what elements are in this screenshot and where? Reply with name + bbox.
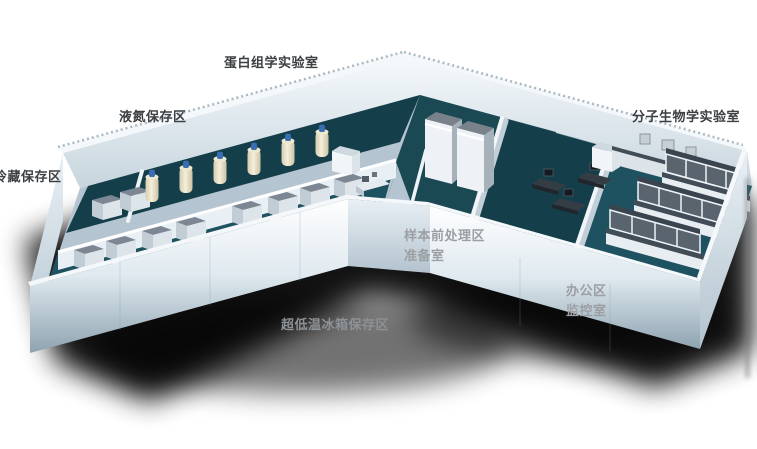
label-preparation-room: 准备室 xyxy=(404,249,445,264)
label-molecular-biology-lab: 分子生物学实验室 xyxy=(632,110,740,125)
label-ultralow-freezer-area: 超低温冰箱保存区 xyxy=(281,318,389,333)
storage-cabinet xyxy=(425,112,462,184)
wall-cabinet xyxy=(332,146,360,176)
lab-floorplan-rendering: 蛋白组学实验室 液氮保存区 冷藏保存区 分子生物学实验室 样本前处理区 准备室 … xyxy=(0,0,757,449)
label-sample-pretreatment-area: 样本前处理区 xyxy=(404,229,485,244)
label-cold-storage-area: 冷藏保存区 xyxy=(0,170,62,185)
shadow-edge-strip xyxy=(745,178,750,378)
label-office-area: 办公区 xyxy=(566,284,607,299)
label-proteomics-lab: 蛋白组学实验室 xyxy=(224,56,319,71)
storage-cabinet xyxy=(457,121,494,193)
label-monitoring-room: 监控室 xyxy=(566,304,607,319)
floorplan-3d-scene xyxy=(0,0,757,449)
label-liquid-nitrogen-area: 液氮保存区 xyxy=(119,110,187,125)
